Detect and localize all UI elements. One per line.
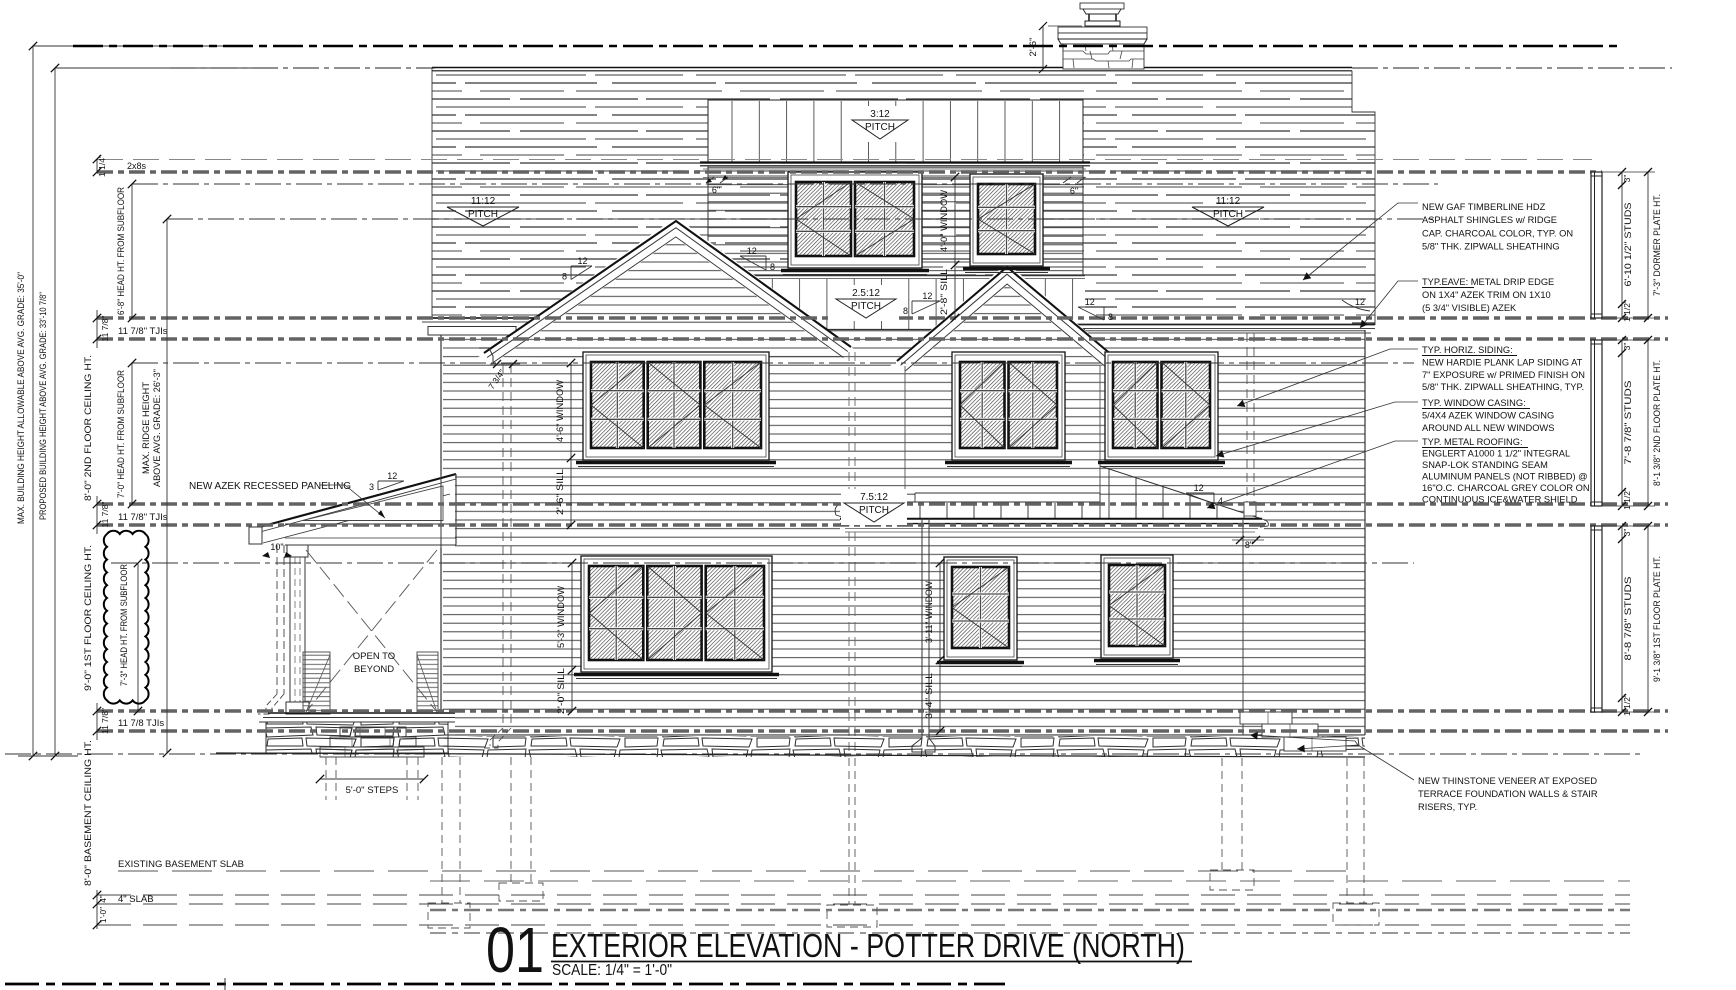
svg-text:PITCH: PITCH (859, 505, 889, 516)
svg-text:TYP. METAL ROOFING:: TYP. METAL ROOFING: (1422, 437, 1523, 447)
svg-text:ON 1X4" AZEK TRIM ON 1X10: ON 1X4" AZEK TRIM ON 1X10 (1422, 290, 1551, 300)
svg-text:4'-0" WINDOW: 4'-0" WINDOW (939, 190, 949, 252)
svg-text:4: 4 (1218, 496, 1223, 506)
svg-text:11 7/8 TJIs: 11 7/8 TJIs (118, 718, 164, 729)
svg-text:9'-0" 1ST FLOOR CEILING HT.: 9'-0" 1ST FLOOR CEILING HT. (83, 545, 94, 691)
svg-text:4" SLAB: 4" SLAB (118, 894, 154, 905)
svg-text:11:12: 11:12 (471, 196, 496, 207)
svg-text:4": 4" (99, 895, 108, 902)
svg-text:SCALE: 1/4" = 1'-0": SCALE: 1/4" = 1'-0" (552, 962, 672, 979)
svg-text:1 1/2": 1 1/2" (1622, 300, 1632, 322)
svg-text:9'-1 3/8" 1ST FLOOR PLATE HT.: 9'-1 3/8" 1ST FLOOR PLATE HT. (1652, 556, 1662, 682)
svg-text:NEW THINSTONE VENEER AT EXPOSE: NEW THINSTONE VENEER AT EXPOSED (1418, 776, 1597, 786)
svg-text:5'-0" STEPS: 5'-0" STEPS (346, 785, 399, 796)
svg-text:1'-0": 1'-0" (99, 907, 108, 923)
svg-text:2x8s: 2x8s (127, 161, 147, 171)
svg-text:TYP. HORIZ. SIDING:: TYP. HORIZ. SIDING: (1422, 345, 1513, 355)
svg-text:01: 01 (486, 914, 544, 986)
svg-text:BEYOND: BEYOND (354, 664, 394, 675)
svg-text:3:12: 3:12 (870, 109, 890, 120)
svg-text:NEW AZEK RECESSED PANELING: NEW AZEK RECESSED PANELING (189, 481, 351, 492)
svg-text:5/8" THK. ZIPWALL SHEATHING, T: 5/8" THK. ZIPWALL SHEATHING, TYP. (1422, 382, 1584, 392)
svg-text:16"O.C. CHARCOAL GREY COLOR ON: 16"O.C. CHARCOAL GREY COLOR ON (1422, 483, 1590, 493)
svg-text:(5 3/4" VISIBLE) AZEK: (5 3/4" VISIBLE) AZEK (1422, 303, 1517, 313)
svg-text:RISERS, TYP.: RISERS, TYP. (1418, 802, 1477, 812)
svg-text:PITCH: PITCH (468, 209, 498, 220)
svg-text:5'-3" WINDOW: 5'-3" WINDOW (556, 586, 566, 648)
svg-text:8: 8 (903, 306, 908, 316)
svg-text:3": 3" (1622, 343, 1632, 351)
svg-text:7" EXPOSURE w/ PRIMED FINISH O: 7" EXPOSURE w/ PRIMED FINISH ON (1422, 370, 1585, 380)
svg-text:NEW GAF TIMBERLINE HDZ: NEW GAF TIMBERLINE HDZ (1422, 202, 1546, 212)
svg-text:ENGLERT A1000 1 1/2" INTEGRAL: ENGLERT A1000 1 1/2" INTEGRAL (1422, 449, 1570, 459)
svg-text:TYP. WINDOW CASING:: TYP. WINDOW CASING: (1422, 398, 1526, 408)
svg-text:PITCH: PITCH (865, 122, 895, 133)
svg-text:7'-8 7/8" STUDS: 7'-8 7/8" STUDS (1623, 381, 1633, 465)
svg-text:EXTERIOR ELEVATION - POTTER DR: EXTERIOR ELEVATION - POTTER DRIVE (NORTH… (551, 927, 1185, 964)
svg-text:12: 12 (1194, 483, 1204, 493)
svg-text:8: 8 (770, 262, 775, 272)
svg-text:7'-3" DORMER PLATE HT.: 7'-3" DORMER PLATE HT. (1652, 194, 1662, 296)
svg-text:PITCH: PITCH (1213, 209, 1243, 220)
svg-text:11 7/8": 11 7/8" (100, 501, 110, 527)
svg-text:12: 12 (922, 291, 932, 301)
svg-text:2'-8" SILL: 2'-8" SILL (939, 269, 949, 315)
svg-text:11 7/8": 11 7/8" (100, 708, 110, 734)
svg-text:EXISTING BASEMENT SLAB: EXISTING BASEMENT SLAB (118, 859, 244, 870)
svg-text:3'-11" WINDOW: 3'-11" WINDOW (924, 581, 934, 643)
svg-text:ASPHALT SHINGLES w/ RIDGE: ASPHALT SHINGLES w/ RIDGE (1422, 215, 1557, 225)
svg-text:12: 12 (578, 256, 588, 266)
svg-text:1 1/4": 1 1/4" (97, 155, 107, 177)
svg-text:8: 8 (1108, 312, 1113, 322)
svg-text:7'-3" HEAD HT. FROM SUBFLOOR: 7'-3" HEAD HT. FROM SUBFLOOR (119, 564, 129, 686)
svg-text:NEW HARDIE PLANK LAP SIDING AT: NEW HARDIE PLANK LAP SIDING AT (1422, 357, 1583, 367)
svg-text:11 7/8" TJIs: 11 7/8" TJIs (118, 512, 168, 523)
svg-text:5/4X4 AZEK WINDOW CASING: 5/4X4 AZEK WINDOW CASING (1422, 410, 1554, 420)
svg-text:MAX. BUILDING HEIGHT ALLOWABLE: MAX. BUILDING HEIGHT ALLOWABLE ABOVE AVG… (16, 272, 27, 524)
svg-text:PROPOSED BUILDING HEIGHT ABOVE: PROPOSED BUILDING HEIGHT ABOVE AVG. GRAD… (38, 292, 49, 520)
svg-text:MAX. RIDGE HEIGHT: MAX. RIDGE HEIGHT (141, 382, 151, 474)
svg-text:8'-8 7/8" STUDS: 8'-8 7/8" STUDS (1623, 577, 1633, 661)
svg-text:2'-0" SILL: 2'-0" SILL (556, 668, 566, 714)
svg-text:12: 12 (1355, 297, 1365, 307)
svg-text:TERRACE FOUNDATION WALLS & STA: TERRACE FOUNDATION WALLS & STAIR (1418, 789, 1598, 799)
svg-text:5/8" THK. ZIPWALL SHEATHING: 5/8" THK. ZIPWALL SHEATHING (1422, 242, 1560, 252)
svg-text:AROUND ALL NEW WINDOWS: AROUND ALL NEW WINDOWS (1422, 423, 1554, 433)
svg-text:CONTINUOUS ICE&WATER SHIELD: CONTINUOUS ICE&WATER SHIELD (1422, 495, 1578, 505)
svg-text:3'-4" SILL: 3'-4" SILL (924, 673, 934, 719)
svg-text:11:12: 11:12 (1216, 196, 1241, 207)
svg-text:CAP. CHARCOAL COLOR, TYP. ON: CAP. CHARCOAL COLOR, TYP. ON (1422, 228, 1573, 238)
svg-text:10": 10" (270, 542, 283, 552)
svg-text:3: 3 (369, 482, 374, 492)
svg-text:6'-8" HEAD HT. FROM SUBFLOOR: 6'-8" HEAD HT. FROM SUBFLOOR (116, 187, 126, 315)
svg-text:3": 3" (1622, 529, 1632, 537)
svg-text:ABOVE AVG. GRADE: 26'-3": ABOVE AVG. GRADE: 26'-3" (152, 369, 162, 487)
svg-text:4'-6" WINDOW: 4'-6" WINDOW (555, 380, 565, 442)
svg-text:11 7/8": 11 7/8" (100, 315, 110, 341)
svg-text:6'-10 1/2" STUDS: 6'-10 1/2" STUDS (1623, 203, 1633, 287)
svg-text:1 1/2": 1 1/2" (1622, 694, 1632, 716)
svg-text:2.5:12: 2.5:12 (852, 288, 880, 299)
svg-text:11 7/8" TJIs: 11 7/8" TJIs (118, 326, 168, 337)
svg-text:SNAP-LOK STANDING SEAM: SNAP-LOK STANDING SEAM (1422, 460, 1548, 470)
svg-text:12: 12 (747, 246, 757, 256)
svg-text:8: 8 (562, 272, 567, 282)
svg-text:3": 3" (1622, 175, 1632, 183)
svg-text:2'-6" SILL: 2'-6" SILL (555, 469, 565, 515)
svg-text:OPEN TO: OPEN TO (353, 651, 395, 662)
svg-text:TYP.EAVE: METAL DRIP EDGE: TYP.EAVE: METAL DRIP EDGE (1422, 277, 1554, 287)
svg-text:6": 6" (1070, 186, 1078, 196)
svg-text:12: 12 (1085, 297, 1095, 307)
svg-text:8": 8" (1245, 540, 1253, 550)
svg-text:ALUMINUM PANELS (NOT RIBBED) @: ALUMINUM PANELS (NOT RIBBED) @ (1422, 472, 1588, 482)
svg-text:8'-1 3/8" 2ND FLOOR PLATE HT.: 8'-1 3/8" 2ND FLOOR PLATE HT. (1652, 360, 1662, 486)
svg-text:1 1/2": 1 1/2" (1622, 488, 1632, 510)
svg-text:8'-0" BASEMENT CEILING HT.: 8'-0" BASEMENT CEILING HT. (83, 740, 94, 886)
svg-text:PITCH: PITCH (851, 301, 881, 312)
svg-text:6": 6" (712, 185, 720, 195)
svg-text:8'-0" 2ND FLOOR CEILING HT.: 8'-0" 2ND FLOOR CEILING HT. (83, 355, 94, 501)
svg-text:7'-0" HEAD HT. FROM SUBFLOOR: 7'-0" HEAD HT. FROM SUBFLOOR (116, 370, 126, 498)
svg-text:12: 12 (387, 471, 397, 481)
svg-text:7.5:12: 7.5:12 (860, 492, 888, 503)
